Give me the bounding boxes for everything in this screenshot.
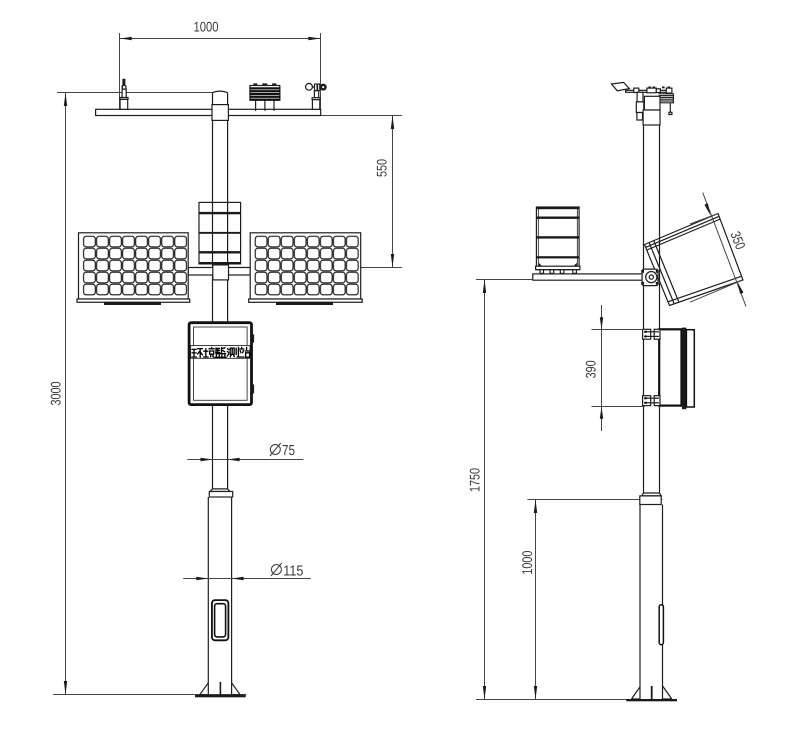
svg-text:1000: 1000 xyxy=(519,550,535,574)
svg-text:3000: 3000 xyxy=(48,381,64,405)
svg-text:1750: 1750 xyxy=(467,468,483,492)
svg-text:390: 390 xyxy=(583,360,599,378)
svg-text:1000: 1000 xyxy=(194,19,219,35)
svg-text:550: 550 xyxy=(374,159,390,177)
svg-text:75: 75 xyxy=(282,443,295,459)
svg-text:115: 115 xyxy=(283,563,303,579)
